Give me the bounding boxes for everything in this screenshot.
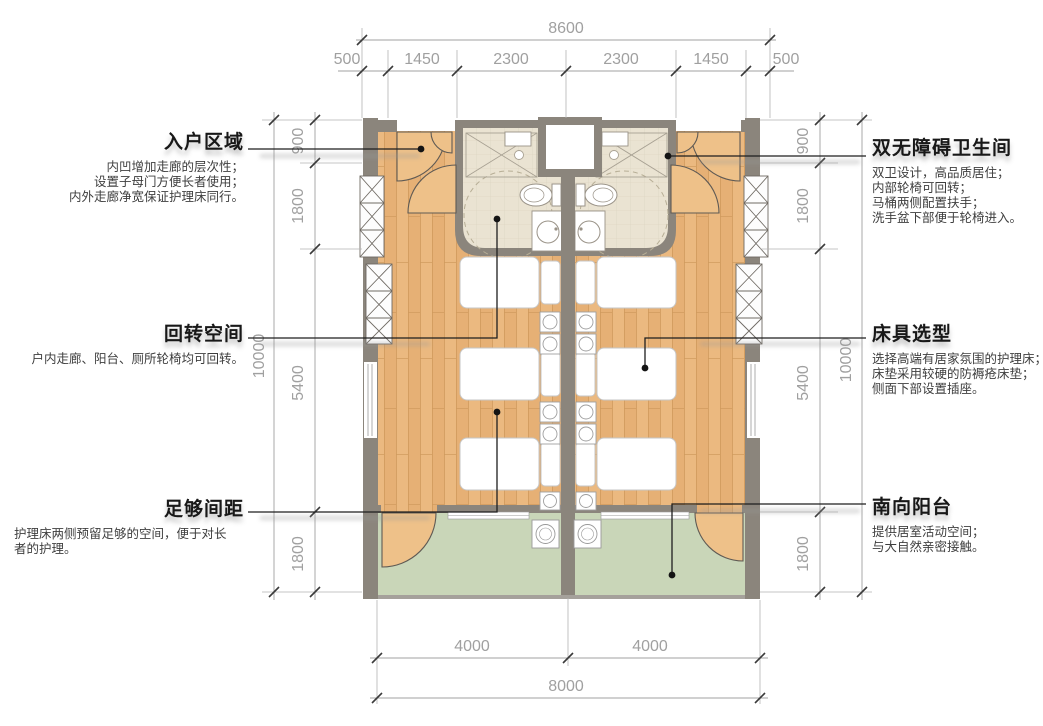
balcony-railing: [363, 595, 760, 599]
dim-right-seg: 5400: [795, 365, 812, 401]
sink-left: [532, 211, 562, 251]
dim-top-seg: 1450: [693, 51, 729, 68]
nightstand: [540, 334, 560, 354]
dim-bottom-total: 8000: [548, 678, 584, 695]
wardrobe-right-upper: [744, 176, 768, 257]
nightstand: [540, 312, 560, 332]
annotation-line: 床垫采用较硬的防褥疮床垫；: [872, 367, 1043, 382]
dim-right-seg: 1800: [795, 536, 812, 572]
annotation-line: 户内走廊、阳台、厕所轮椅均可回转。: [14, 352, 244, 367]
annotation-turning-body: 户内走廊、阳台、厕所轮椅均可回转。: [14, 352, 244, 367]
balcony-window-right: [601, 512, 689, 519]
annotation-line: 护理床两侧预留足够的空间，便于对长者的护理。: [14, 527, 232, 557]
bed-left-3: [460, 438, 560, 490]
dim-top-seg: 500: [773, 51, 800, 68]
annotation-spacing-title: 足够间距: [14, 498, 244, 522]
annotation-balcony: 南向阳台 提供居室活动空间； 与大自然亲密接触。: [872, 496, 1040, 555]
annotation-bed-title: 床具选型: [872, 323, 1043, 347]
annotation-spacing-body: 护理床两侧预留足够的空间，便于对长者的护理。: [14, 527, 232, 557]
annotation-turning-title: 回转空间: [14, 323, 244, 347]
annotation-bathroom: 双无障碍卫生间 双卫设计，高品质居住； 内部轮椅可回转； 马桶两侧配置扶手； 洗…: [872, 137, 1040, 226]
annotation-line: 内部轮椅可回转；: [872, 181, 1040, 196]
wardrobe-left-upper: [360, 176, 384, 257]
bed-right-2: [576, 348, 676, 400]
dim-left-seg: 1800: [290, 536, 307, 572]
annotation-turning: 回转空间 户内走廊、阳台、厕所轮椅均可回转。: [14, 323, 244, 367]
dim-left-seg: 1800: [290, 188, 307, 224]
dim-bottom-seg: 4000: [454, 638, 490, 655]
dim-right-seg: 900: [795, 128, 812, 155]
dim-left-total: 10000: [251, 334, 268, 379]
nightstand: [576, 334, 596, 354]
dim-top-seg: 2300: [493, 51, 529, 68]
sink-right: [575, 211, 605, 251]
wardrobe-right-lower: [736, 264, 762, 344]
annotation-spacing: 足够间距 护理床两侧预留足够的空间，便于对长者的护理。: [14, 498, 244, 557]
annotation-bathroom-title: 双无障碍卫生间: [872, 137, 1040, 161]
annotation-balcony-title: 南向阳台: [872, 496, 1040, 520]
bed-right-3: [576, 438, 676, 490]
annotation-line: 提供居室活动空间；: [872, 525, 1040, 540]
annotation-line: 侧面下部设置插座。: [872, 382, 1043, 397]
nightstand: [576, 424, 596, 444]
dim-right-seg: 1800: [795, 188, 812, 224]
nightstand: [540, 492, 560, 510]
dim-left-seg: 5400: [290, 365, 307, 401]
nightstand: [576, 492, 596, 510]
floor-plan-canvas: 8600 500 1450 2300 2300 1450 500 10000 9…: [0, 0, 1043, 726]
dim-top-seg: 500: [334, 51, 361, 68]
annotation-line: 洗手盆下部便于轮椅进入。: [872, 211, 1040, 226]
annotation-line: 马桶两侧配置扶手；: [872, 196, 1040, 211]
toilet-right: [576, 184, 617, 206]
annotation-bed-body: 选择高端有居家氛围的护理床； 床垫采用较硬的防褥疮床垫； 侧面下部设置插座。: [872, 352, 1043, 397]
side-window-right: [747, 362, 760, 438]
bed-right-1: [576, 257, 676, 308]
annotation-balcony-body: 提供居室活动空间； 与大自然亲密接触。: [872, 525, 1040, 555]
annotation-bed: 床具选型 选择高端有居家氛围的护理床； 床垫采用较硬的防褥疮床垫； 侧面下部设置…: [872, 323, 1043, 397]
annotation-entry-body: 内凹增加走廊的层次性； 设置子母门方便长者使用； 内外走廊净宽保证护理床同行。: [14, 160, 244, 205]
wardrobe-left-lower: [366, 264, 392, 344]
dim-left-seg: 900: [290, 128, 307, 155]
annotation-entry: 入户区域 内凹增加走廊的层次性； 设置子母门方便长者使用； 内外走廊净宽保证护理…: [14, 131, 244, 205]
nightstand: [576, 402, 596, 422]
dim-top-seg: 2300: [603, 51, 639, 68]
balcony-window-left: [448, 512, 529, 519]
dim-top-seg: 1450: [404, 51, 440, 68]
toilet-left: [520, 184, 561, 206]
annotation-line: 与大自然亲密接触。: [872, 540, 1040, 555]
duct-shaft: [538, 117, 602, 177]
dim-top-total: 8600: [548, 20, 584, 37]
side-window-left: [364, 362, 377, 438]
washing-machine: [574, 520, 601, 548]
nightstand: [576, 312, 596, 332]
annotation-entry-title: 入户区域: [14, 131, 244, 155]
annotation-line: 设置子母门方便长者使用；: [14, 175, 244, 190]
bed-left-1: [460, 257, 560, 308]
dim-bottom-seg: 4000: [632, 638, 668, 655]
nightstand: [540, 402, 560, 422]
annotation-line: 双卫设计，高品质居住；: [872, 166, 1040, 181]
annotation-line: 选择高端有居家氛围的护理床；: [872, 352, 1043, 367]
annotation-line: 内外走廊净宽保证护理床同行。: [14, 190, 244, 205]
central-wall: [561, 173, 575, 595]
bed-left-2: [460, 348, 560, 400]
annotation-bathroom-body: 双卫设计，高品质居住； 内部轮椅可回转； 马桶两侧配置扶手； 洗手盆下部便于轮椅…: [872, 166, 1040, 226]
nightstand: [540, 424, 560, 444]
annotation-line: 内凹增加走廊的层次性；: [14, 160, 244, 175]
washing-machine: [532, 520, 559, 548]
